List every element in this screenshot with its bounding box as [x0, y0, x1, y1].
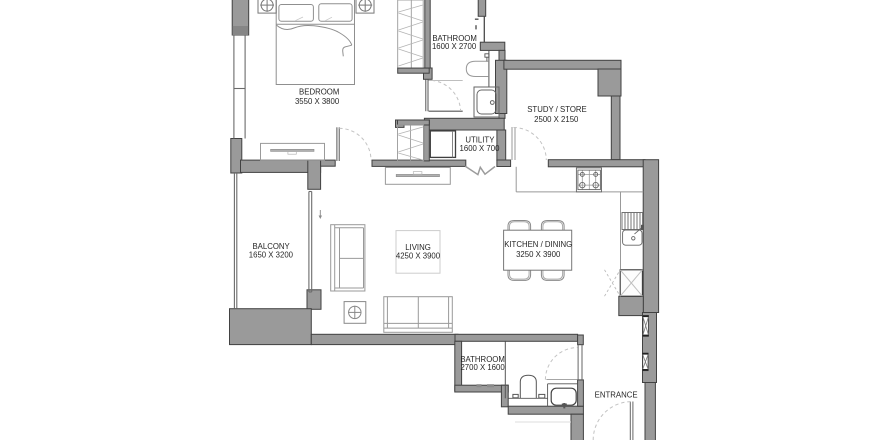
- svg-text:3250 X 3900: 3250 X 3900: [516, 250, 561, 259]
- svg-text:2700 X 1600: 2700 X 1600: [460, 363, 505, 372]
- svg-text:3550 X 3800: 3550 X 3800: [295, 97, 340, 106]
- svg-text:2500 X 2150: 2500 X 2150: [534, 115, 579, 124]
- svg-text:ENTRANCE: ENTRANCE: [595, 390, 638, 399]
- svg-text:KITCHEN / DINING: KITCHEN / DINING: [504, 240, 572, 249]
- svg-text:1650 X 3200: 1650 X 3200: [249, 250, 294, 259]
- svg-text:STUDY / STORE: STUDY / STORE: [527, 105, 587, 114]
- svg-text:1600 X 2700: 1600 X 2700: [432, 42, 477, 51]
- svg-text:UTILITY: UTILITY: [465, 135, 495, 144]
- svg-text:1600 X 700: 1600 X 700: [460, 144, 501, 153]
- svg-text:4250 X 3900: 4250 X 3900: [396, 251, 441, 260]
- svg-text:BEDROOM: BEDROOM: [299, 87, 339, 96]
